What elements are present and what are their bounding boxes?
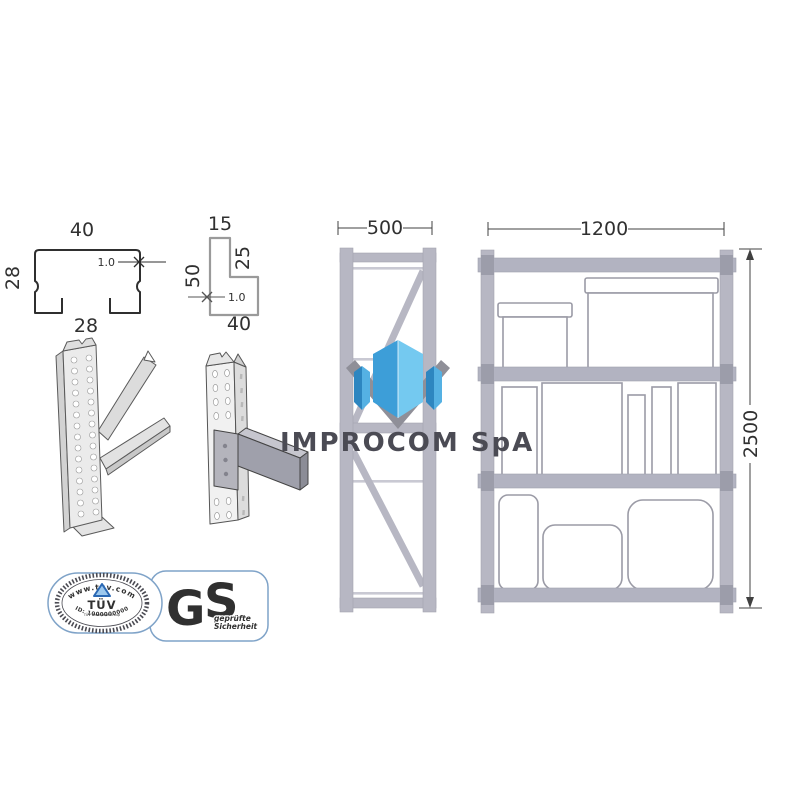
technical-drawing-canvas: 40 28 28 1.0 15 25 50 40 1.0	[0, 0, 800, 800]
certification-badges: G S geprüfte Sicherheit www.tuv.com TÜV …	[42, 562, 272, 662]
gs-caption-line2: Sicherheit	[214, 622, 258, 631]
height-dim-arrow-up	[746, 249, 754, 260]
c-channel-profile-drawing: 40 28 28 1.0	[5, 210, 180, 340]
height-dim-label: 2500	[740, 410, 762, 458]
c-side-dim-label: 28	[2, 266, 24, 290]
small-box-body	[503, 317, 567, 368]
c-thickness-label: 1.0	[98, 256, 116, 269]
small-box-lid	[498, 303, 572, 317]
c-channel-outline	[35, 250, 140, 313]
l-bottom-dim-label: 40	[227, 313, 251, 335]
diagonal-brace-fork-notch	[144, 351, 155, 362]
frame-diagonal-lower	[353, 451, 423, 586]
shelf-containers-bottom	[499, 495, 713, 590]
company-logo-icon	[335, 330, 465, 440]
l-top-dim-label: 15	[208, 213, 232, 235]
front-rack-drawing: 1200 2500	[462, 205, 782, 625]
l-right-dim-label: 25	[232, 246, 254, 270]
height-dim-arrow-down	[746, 597, 754, 608]
l-left-dim-label: 50	[182, 264, 204, 288]
width-dim-label: 1200	[580, 218, 628, 240]
c-top-dim-label: 40	[70, 219, 94, 241]
company-name-watermark: IMPROCOM SpA	[280, 428, 520, 458]
tuv-name-text: TÜV	[87, 597, 116, 612]
diagonal-brace	[98, 357, 156, 440]
l-thickness-label: 1.0	[228, 291, 246, 304]
l-angle-profile-drawing: 15 25 50 40 1.0	[180, 205, 295, 345]
depth-dim-label: 500	[367, 217, 403, 239]
tuv-seal-icon: www.tuv.com TÜV TÜV Rheinland Group ID: …	[57, 575, 147, 631]
large-box-body	[588, 293, 713, 368]
crystal-icon	[354, 340, 442, 418]
gs-letter-g: G	[166, 581, 205, 637]
large-box-lid	[585, 278, 718, 293]
upright-braces-detail-drawing	[48, 336, 188, 541]
shelf-panels-middle	[502, 383, 716, 475]
c-bottom-dim-label: 28	[74, 315, 98, 337]
shelf-boxes-top	[498, 278, 718, 368]
